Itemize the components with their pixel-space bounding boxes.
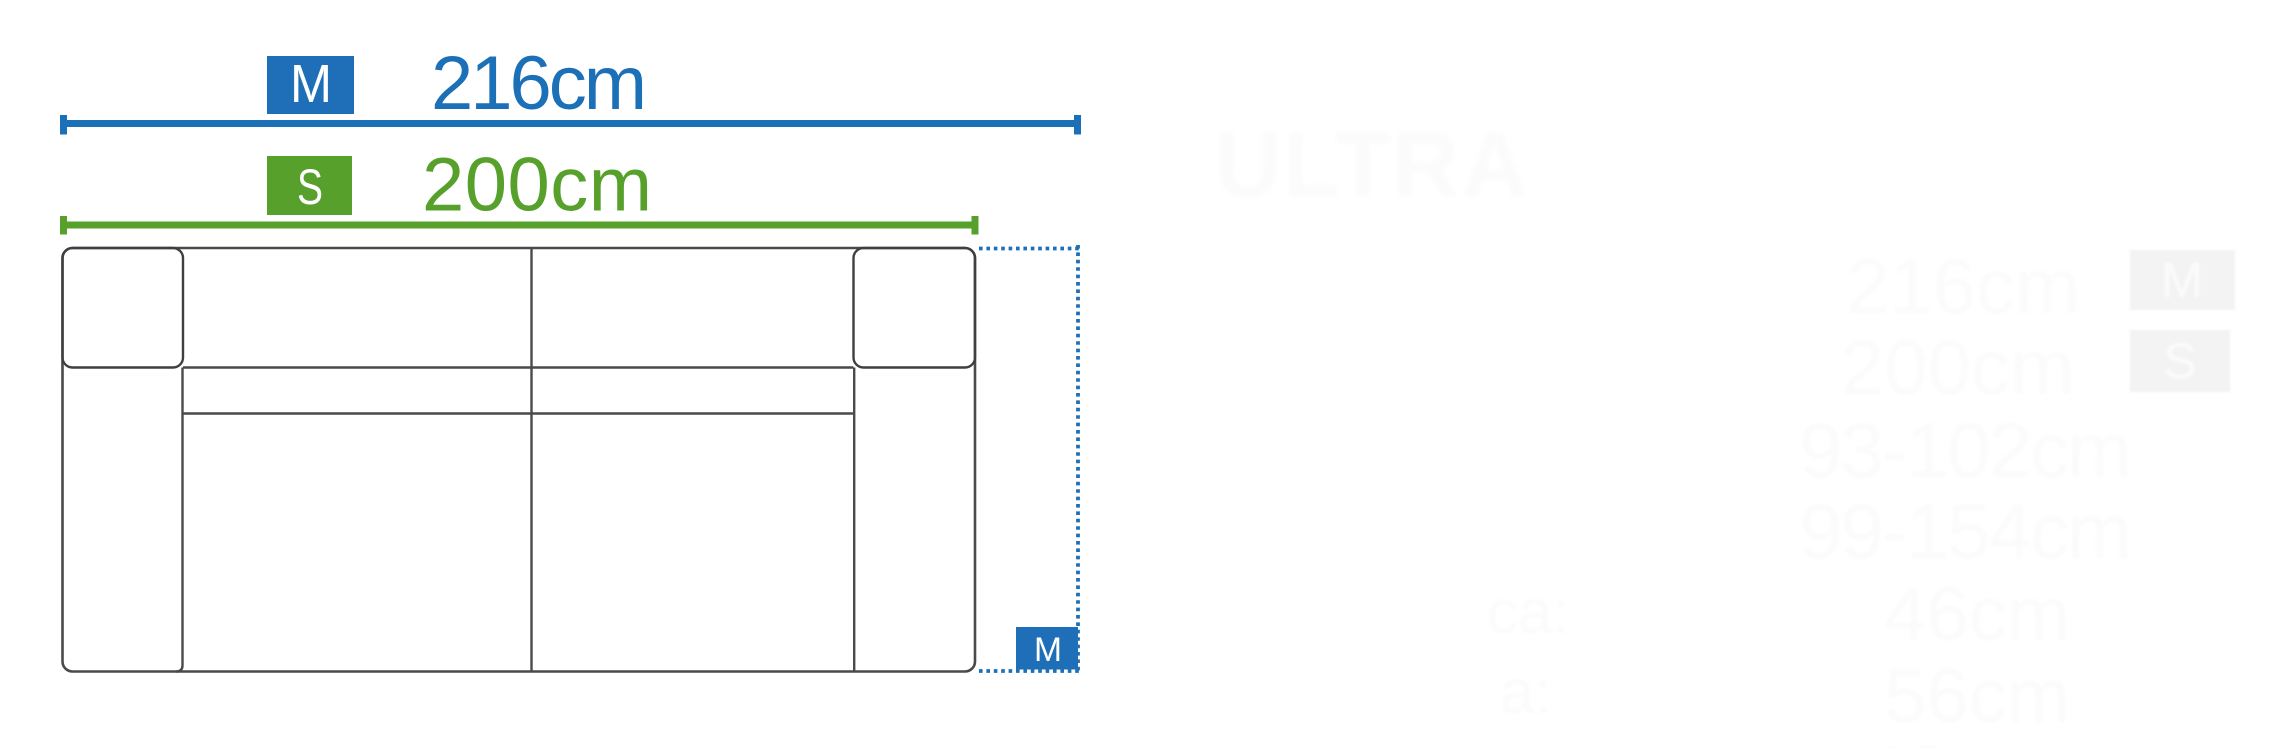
svg-text:ULTRA: ULTRA xyxy=(1215,114,1530,216)
svg-text:M: M xyxy=(1034,631,1062,669)
svg-text:ca:: ca: xyxy=(1487,578,1570,647)
svg-text:93-102cm: 93-102cm xyxy=(1799,406,2130,494)
svg-text:46cm: 46cm xyxy=(1860,731,2046,748)
svg-text:46cm: 46cm xyxy=(1884,572,2070,657)
svg-text:M: M xyxy=(290,54,332,114)
svg-text:200cm: 200cm xyxy=(422,143,653,228)
svg-text:56cm: 56cm xyxy=(1884,654,2070,739)
svg-text:200cm: 200cm xyxy=(1841,323,2075,411)
svg-text:a:: a: xyxy=(1500,658,1552,727)
svg-text:216cm: 216cm xyxy=(1846,242,2080,330)
svg-text:99-154cm: 99-154cm xyxy=(1799,487,2130,575)
svg-text:216cm: 216cm xyxy=(431,41,644,126)
svg-text:M: M xyxy=(2161,252,2203,308)
svg-text:S: S xyxy=(2163,333,2196,389)
svg-text:S: S xyxy=(297,159,323,215)
svg-text:ge:: ge: xyxy=(1487,741,1573,748)
